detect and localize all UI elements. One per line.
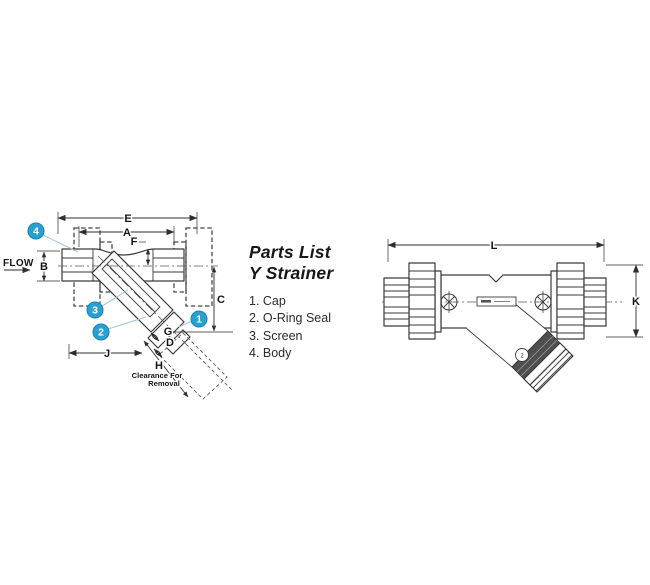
parts-list-title-line1: Parts List [249,242,333,263]
parts-list-item-screen: 3. Screen [249,328,333,345]
svg-text:4: 4 [33,226,39,238]
union-nut-left [409,263,435,339]
parts-list-item-body: 4. Body [249,345,333,362]
svg-text:C: C [217,294,225,306]
svg-text:E: E [124,213,131,225]
right-view: 2 [382,239,643,392]
dimension-H: H Clearance For Removal [132,341,188,397]
parts-list-items: 1. Cap 2. O-Ring Seal 3. Screen 4. Body [249,293,333,363]
dimension-A: A [79,226,174,247]
svg-text:K: K [632,296,640,308]
dimension-J: J [69,344,142,360]
parts-list-title: Parts List Y Strainer [249,242,333,284]
threaded-end-left [384,278,409,326]
parts-list-item-oring: 2. O-Ring Seal [249,310,333,327]
parts-list-title-line2: Y Strainer [249,263,333,284]
threaded-end-right [584,278,606,326]
label-plate [477,297,516,306]
svg-text:B: B [40,261,48,273]
svg-text:L: L [491,240,498,252]
label-plate-marks [481,300,491,303]
svg-text:3: 3 [92,305,98,317]
dimension-K: K [606,265,643,337]
svg-text:Removal: Removal [148,379,180,388]
dimension-L: L [388,239,604,262]
parts-list: Parts List Y Strainer 1. Cap 2. O-Ring S… [249,242,333,363]
collar-right [551,271,557,332]
parts-list-item-cap: 1. Cap [249,293,333,310]
svg-text:J: J [104,348,110,360]
svg-text:F: F [131,236,138,248]
left-view: FLOW E A F B C [3,212,233,399]
union-nut-right [557,263,584,339]
svg-text:D: D [166,337,174,349]
dimension-B: B [37,251,60,281]
flow-label: FLOW [3,258,34,269]
collar-left [435,271,441,332]
svg-text:2: 2 [98,327,104,339]
figure-canvas: FLOW E A F B C [0,0,650,585]
svg-text:1: 1 [196,314,202,326]
